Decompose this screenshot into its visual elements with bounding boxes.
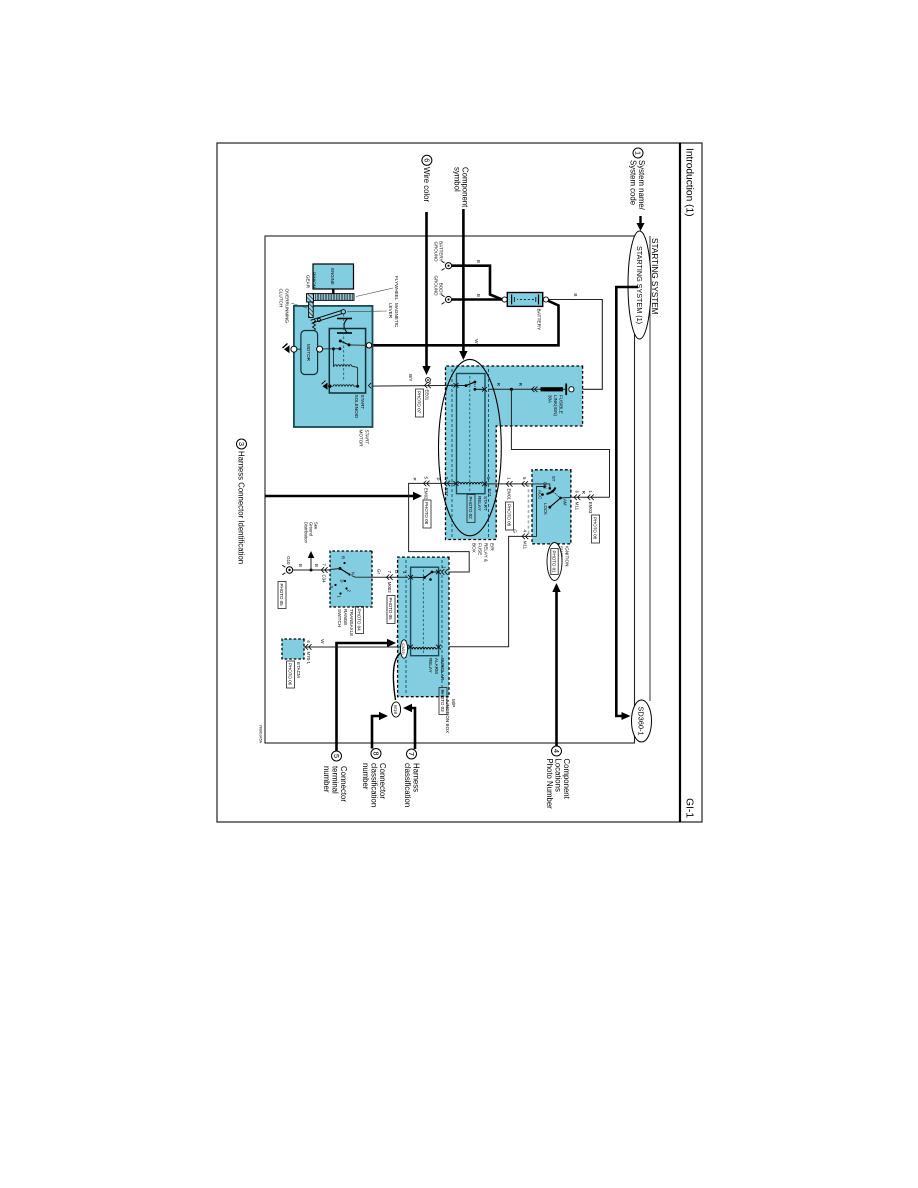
svg-text:6: 6	[423, 158, 432, 162]
svg-text:P: P	[412, 478, 417, 481]
svg-text:terminal: terminal	[331, 766, 340, 794]
svg-text:PHOTO 02: PHOTO 02	[468, 497, 473, 520]
svg-text:B: B	[476, 294, 481, 297]
svg-text:AM: AM	[563, 499, 568, 506]
svg-text:BOX: BOX	[472, 543, 477, 553]
svg-text:JUNCTION BOX: JUNCTION BOX	[445, 699, 450, 733]
svg-text:M002: M002	[387, 582, 392, 594]
svg-text:PINION: PINION	[312, 272, 317, 288]
svg-text:PHOTO 03: PHOTO 03	[440, 690, 445, 713]
svg-text:RANGE: RANGE	[343, 609, 348, 625]
svg-text:5: 5	[522, 477, 527, 480]
svg-text:7: 7	[322, 563, 327, 566]
svg-text:LINK(IGN): LINK(IGN)	[553, 395, 558, 417]
svg-text:4: 4	[552, 749, 561, 753]
svg-text:Component: Component	[461, 167, 470, 208]
svg-text:BATTERY: BATTERY	[439, 241, 444, 261]
svg-text:SWITCH: SWITCH	[337, 609, 342, 627]
svg-text:M70-1: M70-1	[306, 652, 311, 665]
svg-text:CLUTCH: CLUTCH	[279, 289, 284, 308]
svg-text:30A: 30A	[548, 395, 553, 403]
svg-text:PHOTO 04: PHOTO 04	[357, 609, 362, 632]
svg-text:4: 4	[523, 530, 528, 533]
svg-text:START: START	[483, 496, 488, 511]
svg-text:B: B	[314, 564, 319, 567]
svg-text:3: 3	[237, 442, 246, 446]
svg-text:R: R	[341, 556, 346, 559]
svg-text:classification: classification	[403, 763, 412, 807]
svg-text:MOTOR: MOTOR	[359, 430, 364, 448]
svg-text:MOTOR: MOTOR	[306, 344, 311, 362]
svg-text:6: 6	[306, 640, 311, 643]
svg-text:SOLENOID: SOLENOID	[354, 395, 359, 419]
svg-text:PHOTO 06: PHOTO 06	[288, 663, 293, 686]
svg-text:1: 1	[506, 477, 511, 480]
svg-text:7: 7	[407, 752, 416, 756]
svg-text:N: N	[351, 572, 356, 575]
svg-text:BATTERY: BATTERY	[536, 309, 542, 331]
svg-text:RELAY: RELAY	[477, 496, 482, 511]
svg-text:PHOTO 08: PHOTO 08	[424, 502, 429, 525]
svg-text:YKBG345A: YKBG345A	[259, 725, 263, 744]
svg-text:LOCK: LOCK	[543, 503, 548, 515]
svg-text:Introduction (1): Introduction (1)	[684, 148, 695, 217]
svg-text:EM01: EM01	[506, 489, 511, 501]
svg-text:GI-1: GI-1	[684, 798, 695, 818]
svg-text:STARTING SYSTEM (1): STARTING SYSTEM (1)	[635, 246, 644, 324]
svg-text:OVERRUNNING: OVERRUNNING	[285, 289, 290, 324]
svg-text:G10: G10	[286, 556, 291, 565]
svg-text:RELAY: RELAY	[428, 658, 433, 673]
svg-text:Harness: Harness	[412, 763, 421, 792]
svg-text:1: 1	[588, 491, 593, 494]
svg-text:M/P: M/P	[451, 699, 456, 707]
svg-text:R: R	[581, 491, 586, 495]
svg-text:1: 1	[634, 151, 643, 155]
svg-text:Connector: Connector	[378, 763, 387, 799]
svg-text:System name/: System name/	[637, 160, 646, 211]
svg-text:GROUND: GROUND	[434, 276, 439, 297]
svg-text:M11: M11	[523, 541, 528, 550]
svg-text:GEAR: GEAR	[306, 275, 311, 289]
svg-text:PHOTO 01: PHOTO 01	[552, 551, 557, 574]
svg-text:EE01: EE01	[425, 390, 430, 401]
svg-text:W: W	[320, 639, 325, 644]
svg-text:classification: classification	[370, 763, 379, 807]
svg-text:PHOTO 08: PHOTO 08	[593, 517, 598, 540]
svg-text:Photo Number: Photo Number	[545, 759, 554, 810]
svg-text:P: P	[329, 586, 334, 589]
svg-text:B: B	[298, 564, 303, 567]
svg-text:ETACM: ETACM	[296, 662, 301, 678]
svg-text:Component: Component	[562, 759, 571, 800]
svg-text:ON: ON	[543, 482, 548, 489]
svg-text:Ground: Ground	[309, 522, 314, 537]
svg-text:START: START	[365, 430, 370, 445]
svg-text:FUSE: FUSE	[478, 543, 483, 555]
svg-text:M19: M19	[393, 705, 398, 714]
svg-text:Connector: Connector	[339, 766, 348, 802]
svg-text:FLYWHEEL: FLYWHEEL	[394, 276, 399, 301]
svg-text:E27: E27	[487, 489, 492, 497]
svg-text:number: number	[322, 766, 331, 793]
svg-text:RELAY &: RELAY &	[484, 543, 489, 562]
svg-text:Harness Connector Identificati: Harness Connector Identification	[237, 451, 246, 564]
svg-text:EM03: EM03	[588, 502, 593, 514]
svg-text:8: 8	[372, 752, 381, 756]
svg-text:6: 6	[575, 491, 580, 494]
svg-text:BODY: BODY	[439, 283, 444, 296]
svg-text:P: P	[436, 478, 441, 481]
svg-text:E27: E27	[444, 488, 449, 496]
svg-text:ST: ST	[551, 476, 556, 482]
svg-text:ENGINE: ENGINE	[330, 268, 335, 285]
svg-text:M11: M11	[575, 502, 580, 511]
svg-text:C(M19): C(M19)	[401, 644, 405, 655]
svg-text:ACC: ACC	[538, 490, 543, 499]
svg-text:PHOTO 05: PHOTO 05	[388, 598, 393, 621]
svg-text:EM02: EM02	[424, 488, 429, 500]
svg-text:PHOTO 05: PHOTO 05	[279, 584, 284, 607]
svg-text:number: number	[361, 763, 370, 790]
svg-text:G: G	[513, 529, 518, 533]
svg-text:symbol: symbol	[453, 167, 462, 192]
svg-text:PHOTO 07: PHOTO 07	[417, 391, 422, 414]
svg-text:5: 5	[332, 754, 341, 758]
svg-text:TRANSAXLE: TRANSAXLE	[349, 609, 354, 636]
svg-text:B/Y: B/Y	[408, 374, 413, 381]
svg-text:E/R: E/R	[490, 543, 495, 551]
svg-text:BURGLAR: BURGLAR	[440, 658, 445, 681]
svg-text:B: B	[573, 293, 578, 296]
svg-text:MAGNETIC: MAGNETIC	[394, 303, 399, 328]
svg-text:IGNITION: IGNITION	[565, 546, 570, 566]
svg-text:Distribution: Distribution	[304, 522, 309, 544]
svg-text:LEVER: LEVER	[388, 303, 393, 319]
svg-text:G: G	[394, 570, 399, 574]
svg-text:7: 7	[387, 571, 392, 574]
svg-text:B: B	[476, 260, 481, 263]
svg-text:GROUND: GROUND	[434, 242, 439, 263]
svg-text:5: 5	[424, 477, 429, 480]
svg-text:See: See	[314, 522, 319, 530]
svg-text:Gr: Gr	[377, 569, 382, 575]
svg-text:W: W	[474, 339, 479, 344]
svg-text:FUSIBLE: FUSIBLE	[559, 395, 564, 414]
svg-text:D: D	[340, 580, 345, 583]
svg-text:C34: C34	[322, 575, 327, 584]
svg-text:START: START	[360, 395, 365, 410]
svg-text:Wire color: Wire color	[422, 167, 431, 202]
svg-text:Locations: Locations	[554, 759, 563, 792]
svg-text:SD360-1: SD360-1	[637, 706, 646, 735]
svg-text:ALARM: ALARM	[434, 658, 439, 674]
svg-text:System code: System code	[629, 160, 638, 205]
svg-text:PHOTO 08: PHOTO 08	[507, 504, 512, 527]
